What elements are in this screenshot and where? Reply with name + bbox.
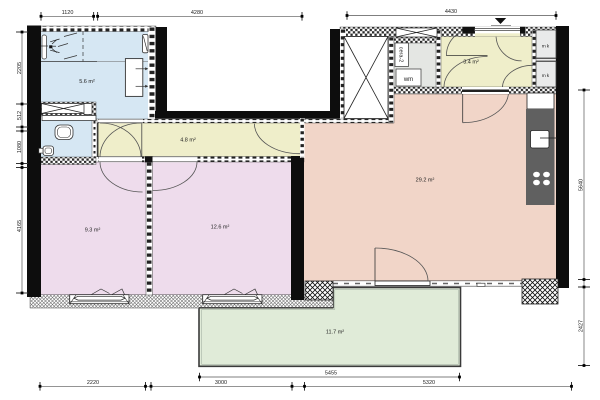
svg-text:1080: 1080: [17, 141, 23, 153]
svg-text:5320: 5320: [423, 380, 435, 386]
svg-text:3.4 m²: 3.4 m²: [463, 60, 479, 66]
svg-text:9.3 m²: 9.3 m²: [85, 228, 101, 234]
svg-text:4280: 4280: [191, 10, 203, 16]
svg-text:cera-2: cera-2: [398, 47, 404, 63]
svg-text:12.6 m²: 12.6 m²: [211, 225, 230, 231]
svg-text:wm: wm: [403, 77, 413, 83]
svg-text:4.8 m²: 4.8 m²: [180, 138, 196, 144]
svg-text:4165: 4165: [17, 220, 23, 232]
svg-text:5640: 5640: [579, 179, 585, 191]
svg-text:2205: 2205: [17, 62, 23, 74]
svg-text:5.6 m²: 5.6 m²: [79, 79, 95, 85]
svg-text:5455: 5455: [325, 371, 337, 377]
svg-text:3000: 3000: [215, 380, 227, 386]
svg-text:4430: 4430: [445, 9, 457, 15]
svg-text:mk: mk: [542, 44, 550, 50]
svg-text:mk: mk: [542, 73, 550, 79]
svg-text:11.7 m²: 11.7 m²: [326, 330, 344, 336]
svg-text:29.2 m²: 29.2 m²: [416, 178, 435, 184]
svg-text:512: 512: [17, 111, 23, 120]
svg-text:2427: 2427: [579, 320, 585, 332]
svg-text:2220: 2220: [87, 380, 99, 386]
svg-text:1120: 1120: [62, 10, 74, 16]
